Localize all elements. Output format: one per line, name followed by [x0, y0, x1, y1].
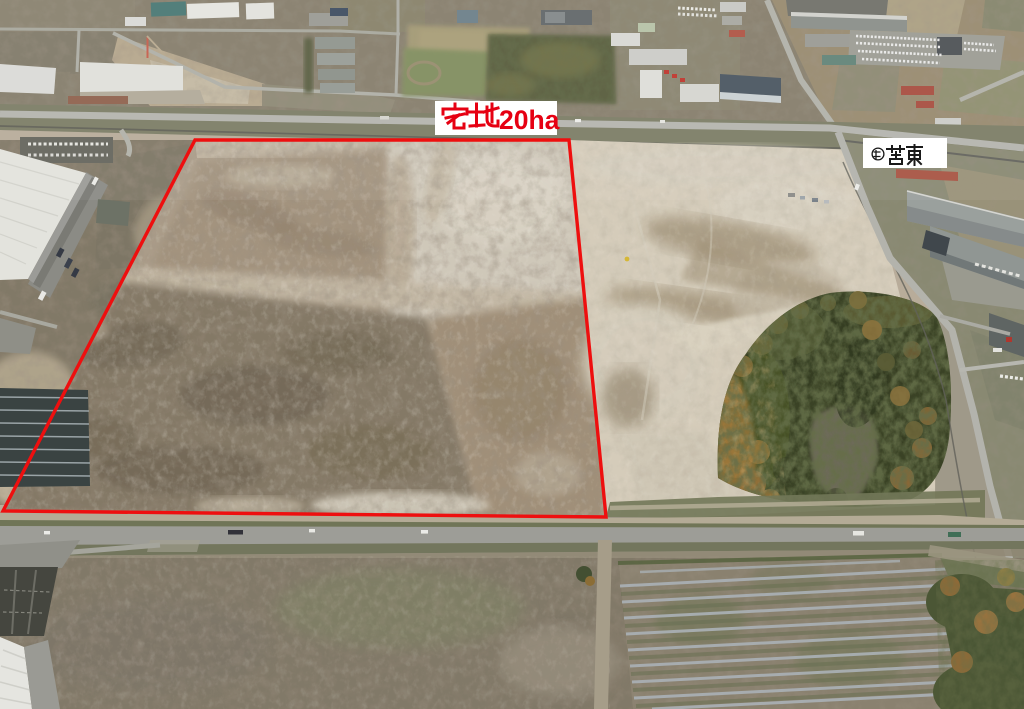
svg-text:20ha: 20ha	[499, 105, 560, 135]
